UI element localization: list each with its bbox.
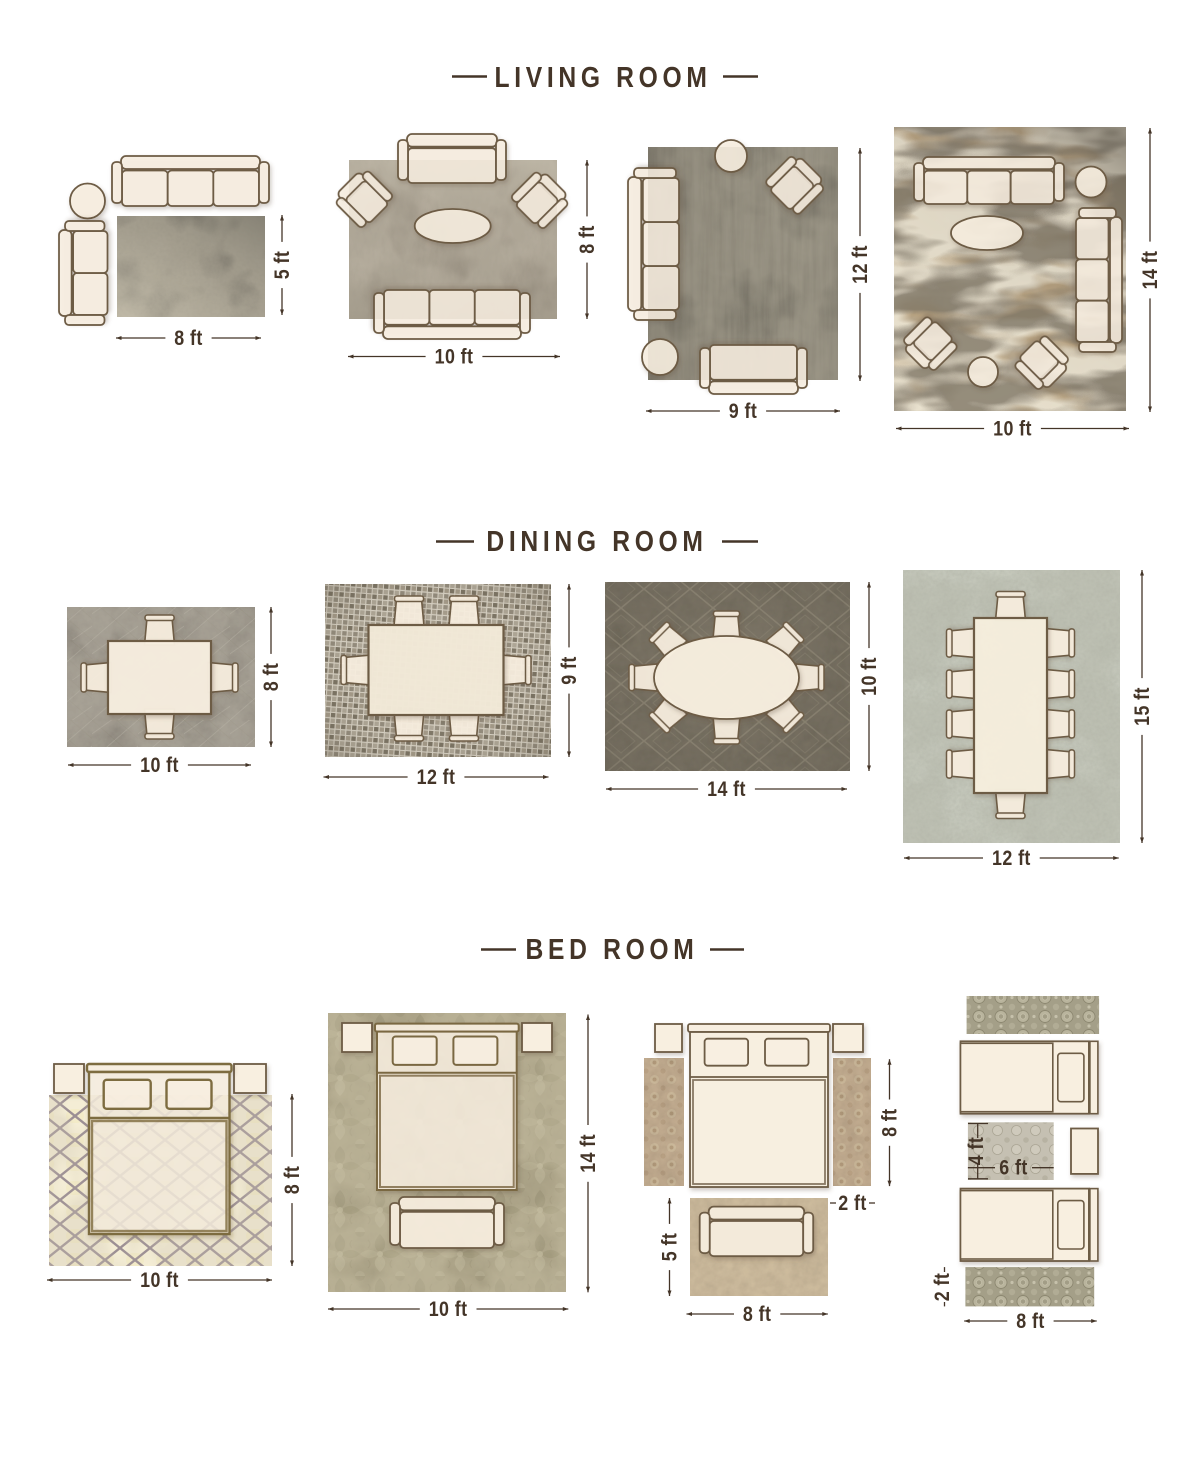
svg-text:10 ft: 10 ft: [993, 417, 1032, 441]
svg-text:5 ft: 5 ft: [271, 251, 295, 279]
svg-text:14 ft: 14 ft: [1139, 251, 1163, 290]
svg-text:8 ft: 8 ft: [281, 1166, 305, 1194]
svg-text:12 ft: 12 ft: [849, 245, 873, 284]
svg-text:12 ft: 12 ft: [992, 847, 1031, 871]
svg-text:12 ft: 12 ft: [417, 766, 456, 790]
svg-text:10 ft: 10 ft: [435, 345, 474, 369]
svg-text:2 ft: 2 ft: [838, 1192, 866, 1216]
svg-text:LIVING ROOM: LIVING ROOM: [494, 61, 711, 93]
svg-text:8 ft: 8 ft: [260, 663, 284, 691]
svg-text:4 ft: 4 ft: [965, 1137, 989, 1165]
svg-text:DINING ROOM: DINING ROOM: [486, 525, 707, 557]
svg-text:BED ROOM: BED ROOM: [526, 933, 699, 965]
svg-text:9 ft: 9 ft: [729, 400, 757, 424]
svg-text:8 ft: 8 ft: [174, 327, 202, 351]
svg-text:10 ft: 10 ft: [858, 657, 882, 696]
svg-text:8 ft: 8 ft: [878, 1108, 902, 1136]
svg-text:8 ft: 8 ft: [743, 1303, 771, 1327]
svg-text:6 ft: 6 ft: [999, 1156, 1027, 1180]
svg-text:14 ft: 14 ft: [707, 778, 746, 802]
svg-text:9 ft: 9 ft: [558, 656, 582, 684]
svg-text:2 ft: 2 ft: [931, 1273, 955, 1301]
svg-text:8 ft: 8 ft: [576, 225, 600, 253]
svg-text:8 ft: 8 ft: [1016, 1310, 1044, 1334]
svg-text:10 ft: 10 ft: [140, 1269, 179, 1293]
svg-text:15 ft: 15 ft: [1131, 687, 1155, 726]
svg-text:5 ft: 5 ft: [658, 1233, 682, 1261]
svg-text:10 ft: 10 ft: [429, 1298, 468, 1322]
svg-text:14 ft: 14 ft: [577, 1134, 601, 1173]
svg-text:10 ft: 10 ft: [140, 754, 179, 778]
